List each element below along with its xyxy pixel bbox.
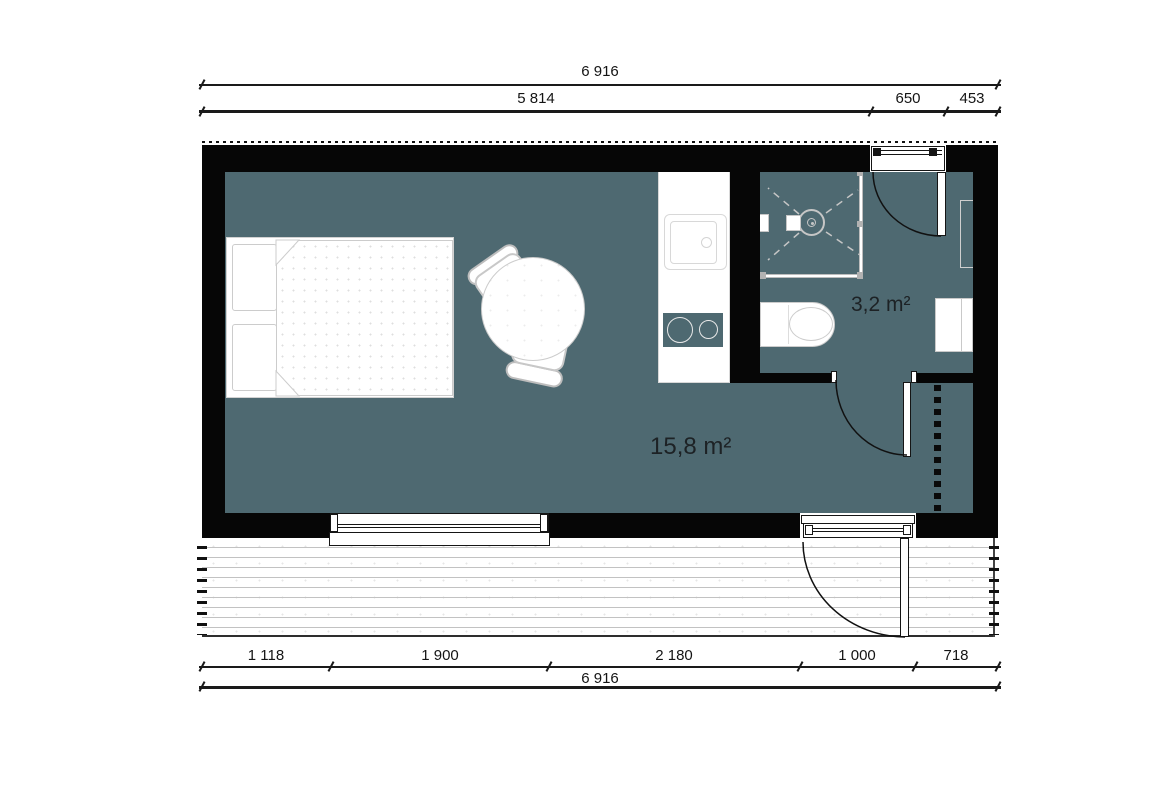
dimension-line: [199, 666, 1001, 668]
dimension-label: 1 900: [400, 647, 480, 664]
dimension-label: 5 814: [496, 90, 576, 107]
duvet-fold: [276, 240, 299, 265]
dimension-line: [199, 110, 1001, 113]
duvet-fold: [276, 371, 299, 396]
shower-spray-rays: [768, 188, 860, 260]
door-swing-arc: [836, 380, 907, 455]
door-swing-arc: [873, 172, 941, 236]
dimension-label: 6 916: [560, 670, 640, 687]
door-swing-arc: [803, 542, 905, 637]
dimension-label: 1 000: [817, 647, 897, 664]
dimension-label: 6 916: [560, 63, 640, 80]
area-label-main-room: 15,8 m²: [650, 433, 731, 461]
dimension-label: 650: [878, 90, 938, 107]
dimension-label: 1 118: [226, 647, 306, 664]
dimension-label: 718: [916, 647, 996, 664]
dimension-label: 453: [942, 90, 1002, 107]
dimension-label: 2 180: [634, 647, 714, 664]
floor-plan-canvas: 15,8 m² 3,2 m² 6 916 5 814 650 453 1 118…: [0, 0, 1170, 785]
dimension-line: [199, 84, 1001, 86]
area-label-bathroom: 3,2 m²: [851, 293, 911, 317]
